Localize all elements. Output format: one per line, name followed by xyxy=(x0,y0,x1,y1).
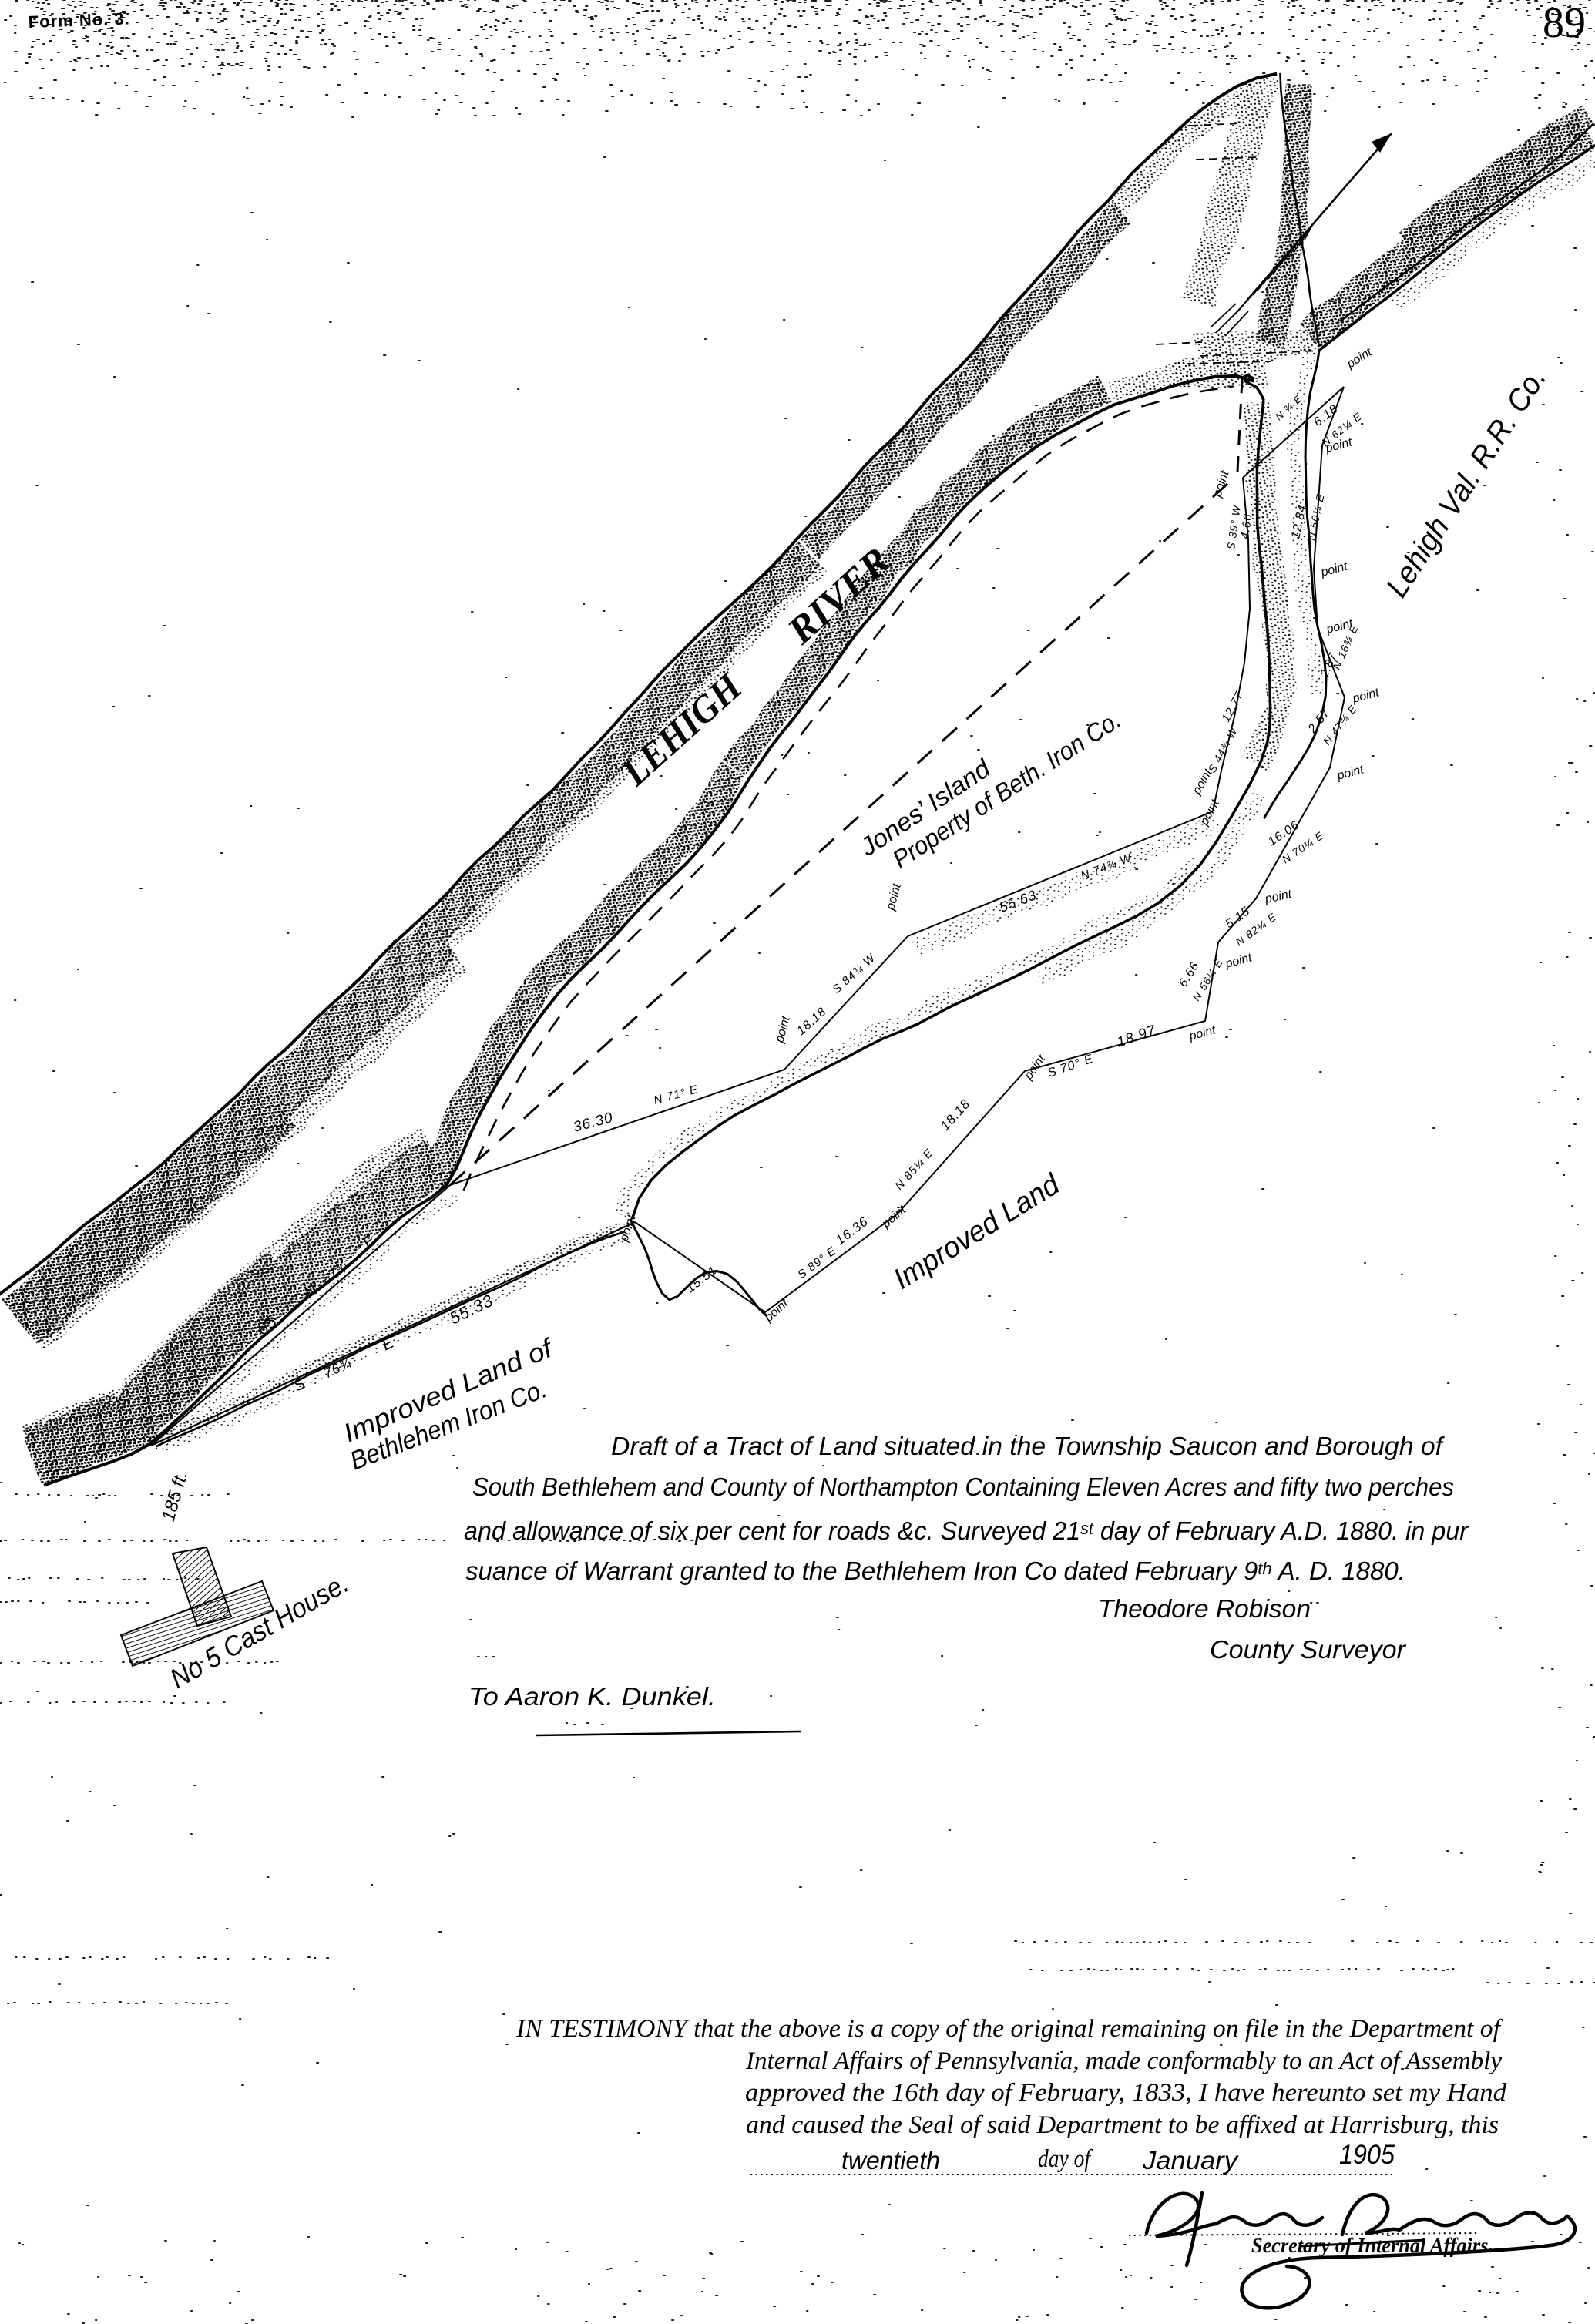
svg-text:point: point xyxy=(1319,559,1349,579)
svg-text:point: point xyxy=(1211,468,1231,499)
svg-text:Theodore Robison: Theodore Robison xyxy=(1098,1594,1311,1623)
svg-text:Draft of a Tract of Land: Draft of a Tract of Land situated in the… xyxy=(611,1432,1446,1460)
svg-text:18.18: 18.18 xyxy=(794,1005,829,1038)
svg-text:point: point xyxy=(1351,686,1381,706)
svg-text:S 70° E: S 70° E xyxy=(1046,1053,1096,1080)
svg-text:County Surveyor: County Surveyor xyxy=(1210,1635,1407,1664)
svg-text:point: point xyxy=(1022,1053,1049,1083)
svg-text:day of: day of xyxy=(1038,2145,1093,2173)
svg-text:12.77: 12.77 xyxy=(1220,689,1247,724)
svg-text:January: January xyxy=(1142,2146,1240,2175)
svg-text:Form No. 3.: Form No. 3. xyxy=(28,8,130,32)
svg-text:IN TESTIMONY that the above is: IN TESTIMONY that the above is a copy of… xyxy=(515,2015,1503,2043)
svg-text:point: point xyxy=(884,882,904,912)
svg-text:point: point xyxy=(1224,951,1254,971)
svg-text:E: E xyxy=(379,1333,398,1354)
svg-text:Improved Land: Improved Land xyxy=(888,1167,1067,1295)
svg-text:twentieth: twentieth xyxy=(841,2146,940,2175)
svg-text:point: point xyxy=(1344,345,1375,371)
svg-text:To Aaron K. Dunkel.: To Aaron K. Dunkel. xyxy=(468,1682,716,1711)
svg-text:point: point xyxy=(762,1297,791,1325)
svg-text:N 85¼ E: N 85¼ E xyxy=(892,1147,935,1193)
svg-text:point: point xyxy=(879,1203,909,1231)
svg-text:Property of Beth. Iron Co.: Property of Beth. Iron Co. xyxy=(888,705,1126,874)
svg-text:N 71° E: N 71° E xyxy=(653,1083,700,1107)
svg-text:18.18: 18.18 xyxy=(938,1097,973,1133)
svg-text:and allowance of six per: and allowance of six per cent for roads … xyxy=(464,1516,1469,1545)
svg-text:Internal Affairs of Pennsylvan: Internal Affairs of Pennsylvania, made c… xyxy=(745,2047,1502,2075)
svg-text:point: point xyxy=(1263,888,1293,906)
svg-text:South Bethlehem and County: South Bethlehem and County of Northampto… xyxy=(472,1473,1454,1501)
svg-text:point: point xyxy=(773,1015,793,1045)
svg-text:89: 89 xyxy=(1543,0,1586,47)
svg-text:1905: 1905 xyxy=(1339,2140,1395,2170)
svg-text:18.97: 18.97 xyxy=(1115,1023,1159,1051)
svg-text:point: point xyxy=(1335,763,1365,783)
svg-text:36.30: 36.30 xyxy=(572,1110,615,1136)
svg-text:suance of Warrant granted: suance of Warrant granted to the Bethleh… xyxy=(465,1557,1405,1585)
svg-text:Lehigh Val. R.R. Co.: Lehigh Val. R.R. Co. xyxy=(1380,362,1553,603)
svg-text:point: point xyxy=(1187,1023,1217,1043)
svg-text:approved the 16th day of Febru: approved the 16th day of February, 1833,… xyxy=(745,2079,1507,2107)
svg-text:4.66: 4.66 xyxy=(1238,512,1254,539)
svg-text:S 84¾ W: S 84¾ W xyxy=(830,951,878,996)
svg-text:16.36: 16.36 xyxy=(833,1214,871,1248)
svg-text:and caused the Seal of said De: and caused the Seal of said Department t… xyxy=(746,2111,1499,2139)
